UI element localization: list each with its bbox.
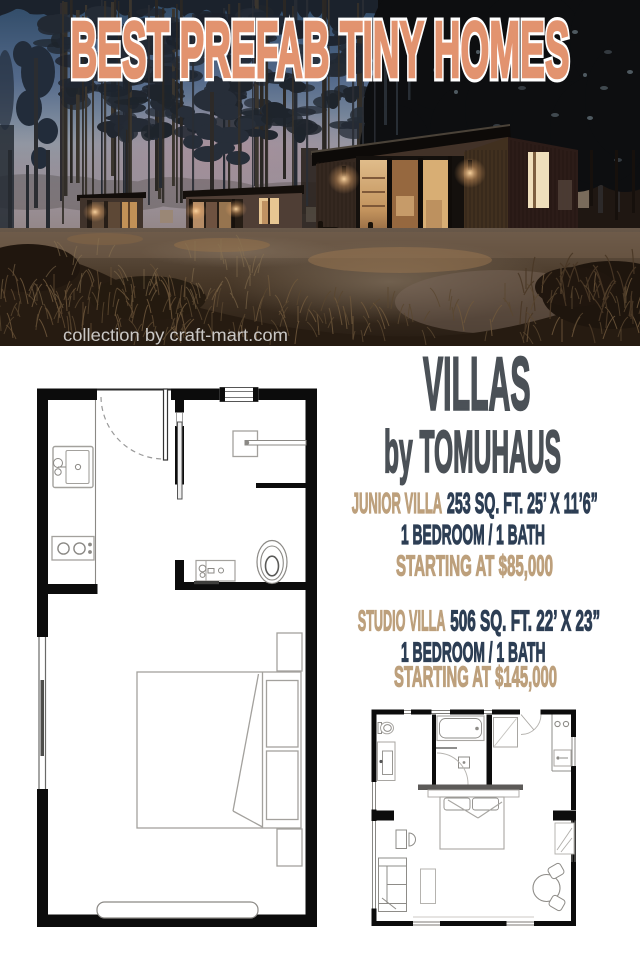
svg-text:STUDIO VILLA: STUDIO VILLA [358,606,446,638]
svg-text:VILLAS: VILLAS [423,348,531,426]
svg-text:253 SQ. FT. 25’ X 11’6”: 253 SQ. FT. 25’ X 11’6” [447,488,598,520]
svg-text:506 SQ. FT. 22’ X 23”: 506 SQ. FT. 22’ X 23” [450,606,600,638]
svg-text:collection by craft-mart.com: collection by craft-mart.com [63,325,288,345]
svg-text:BEST PREFAB TINY HOMES: BEST PREFAB TINY HOMES [71,5,570,94]
svg-text:JUNIOR VILLA: JUNIOR VILLA [352,488,443,520]
svg-text:STARTING AT $85,000: STARTING AT $85,000 [396,551,553,583]
svg-text:by TOMUHAUS: by TOMUHAUS [384,419,561,485]
svg-text:STARTING AT $145,000: STARTING AT $145,000 [394,662,557,694]
svg-text:1 BEDROOM / 1 BATH: 1 BEDROOM / 1 BATH [401,519,545,550]
